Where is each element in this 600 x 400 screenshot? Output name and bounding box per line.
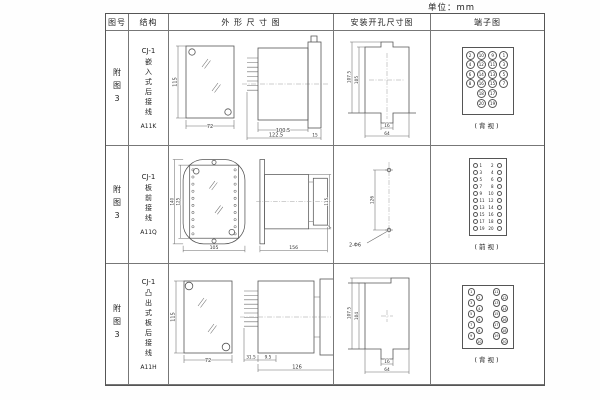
terminal-number: 10 [486, 191, 494, 196]
cell-terminal-row1: 2109141211361413581615718172019 (背视) [431, 31, 544, 146]
terminal-diagram-front-a11q: 1357911131517192468101214161820 [469, 158, 507, 236]
mounting-drawing-a11k: 107.5 105 16 64 [335, 33, 430, 143]
terminal-circle: 11 [488, 60, 497, 69]
terminal-diagram-rear-a11h: 1234567891011121314151617181920 [462, 285, 514, 349]
model-label: A11K [141, 123, 157, 130]
structure-label: 凸出式板后接线 [144, 289, 154, 359]
cell-terminal-row3: 1234567891011121314151617181920 (背视) [431, 264, 544, 385]
header-mounting: 安装开孔尺寸图 [334, 14, 431, 31]
terminal-circle: 20 [501, 338, 509, 346]
model-label: A11Q [140, 229, 156, 236]
terminal-circle [473, 170, 478, 175]
dim-gap: 9.5 [264, 355, 271, 361]
terminal-number: 18 [486, 219, 494, 224]
terminal-circle: 6 [476, 316, 484, 324]
terminal-circle: 19 [493, 332, 501, 340]
terminal-circle [497, 219, 502, 224]
dim-opening-width: 64 [384, 131, 390, 137]
model-label: A11H [140, 364, 156, 371]
terminal-circle [473, 226, 478, 231]
terminal-circle: 14 [501, 305, 509, 313]
terminal-circle: 19 [488, 99, 497, 108]
terminal-circle [473, 198, 478, 203]
structure-label: 板前接线 [144, 184, 154, 224]
dim-front-width: 105 [209, 245, 218, 251]
terminal-number: 14 [486, 205, 494, 210]
terminal-view-label: (背视) [474, 354, 500, 364]
structure-label: 嵌入式后接线 [144, 58, 154, 118]
fig-number: 附图3 [112, 185, 123, 225]
cell-outline-row2: 140 125 105 156 115 [169, 146, 334, 264]
cell-fig-row2: 附图3 [106, 146, 129, 264]
terminal-circle [497, 184, 502, 189]
terminal-circle [473, 177, 478, 182]
dim-front-width: 72 [206, 124, 212, 130]
terminal-circle: 20 [477, 99, 486, 108]
terminal-circle [497, 177, 502, 182]
cell-mounting-row2: 126 2-Φ6 [334, 146, 431, 264]
terminal-circle: 12 [477, 60, 486, 69]
terminal-circle: 3 [468, 299, 476, 307]
cell-structure-row3: CJ-1 凸出式板后接线 A11H [129, 264, 169, 385]
terminal-circle: 2 [466, 51, 475, 60]
terminal-circle: 16 [501, 316, 509, 324]
terminal-circle: 17 [493, 321, 501, 329]
terminal-circle [497, 226, 502, 231]
fig-number: 附图3 [112, 68, 123, 108]
terminal-circle: 10 [476, 338, 484, 346]
dim-inner-height: 105 [353, 76, 359, 84]
terminal-circle: 13 [493, 299, 501, 307]
terminal-number: 6 [486, 177, 494, 182]
terminal-circle [497, 163, 502, 168]
terminal-circle: 5 [468, 310, 476, 318]
dim-slot-width: 16 [384, 123, 390, 129]
terminal-circle: 2 [476, 294, 484, 302]
spec-table: 图号 结构 外 形 尺 寸 图 安装开孔尺寸图 端子图 附图3 CJ-1 嵌入式… [105, 13, 545, 386]
terminal-circle: 6 [466, 70, 475, 79]
dim-side-length: 156 [289, 245, 298, 251]
terminal-number: 16 [486, 212, 494, 217]
terminal-circle [497, 198, 502, 203]
terminal-view-label: (前视) [474, 241, 500, 251]
header-structure: 结构 [129, 14, 169, 31]
dim-pin-length: 31.5 [246, 355, 256, 361]
dim-opening-width: 64 [384, 367, 390, 373]
terminal-circle: 7 [499, 79, 508, 88]
terminal-circle [497, 205, 502, 210]
terminal-number: 12 [486, 198, 494, 203]
cell-outline-row1: 115 72 100.5 122.5 15 [169, 31, 334, 146]
dim-flange: 15 [312, 133, 318, 139]
terminal-circle: 9 [488, 51, 497, 60]
terminal-circle: 1 [468, 288, 476, 296]
header-fig: 图号 [106, 14, 129, 31]
terminal-circle: 4 [466, 60, 475, 69]
terminal-circle: 18 [501, 327, 509, 335]
terminal-circle: 5 [499, 70, 508, 79]
series-label: CJ-1 [142, 47, 156, 55]
terminal-circle: 15 [488, 79, 497, 88]
terminal-circle: 11 [493, 288, 501, 296]
dim-front-height: 140 [170, 197, 175, 205]
dim-front-height: 115 [170, 312, 176, 322]
dim-outer-height: 107.5 [346, 307, 352, 320]
cell-terminal-row2: 1357911131517192468101214161820 (前视) [431, 146, 544, 264]
cell-structure-row2: CJ-1 板前接线 A11Q [129, 146, 169, 264]
terminal-circle: 18 [477, 89, 486, 98]
terminal-circle: 13 [488, 70, 497, 79]
terminal-circle [473, 219, 478, 224]
terminal-view-label: (背视) [474, 120, 500, 130]
cell-mounting-row1: 107.5 105 16 64 [334, 31, 431, 146]
terminal-diagram-rear-a11k: 2109141211361413581615718172019 [462, 47, 514, 115]
mounting-drawing-a11q: 126 2-Φ6 [335, 150, 430, 260]
terminal-number: 2 [486, 163, 494, 168]
terminal-number: 8 [486, 184, 494, 189]
terminal-circle: 7 [468, 321, 476, 329]
terminal-circle [497, 170, 502, 175]
terminal-circle: 9 [468, 332, 476, 340]
terminal-circle: 1 [499, 51, 508, 60]
outline-drawing-a11h: 115 72 31.5 9.5 126 [170, 268, 333, 380]
terminal-circle: 14 [477, 70, 486, 79]
unit-label: 单位：mm [428, 1, 475, 13]
dim-total-length: 126 [292, 365, 302, 371]
cell-outline-row3: 115 72 31.5 9.5 126 [169, 264, 334, 385]
dim-slot-width: 16 [384, 359, 390, 365]
outline-drawing-a11k: 115 72 100.5 122.5 15 [170, 33, 333, 143]
terminal-circle: 12 [501, 294, 509, 302]
terminal-number: 4 [486, 170, 494, 175]
dim-inner-height: 125 [175, 197, 180, 205]
terminal-circle: 3 [499, 60, 508, 69]
hole-size-label: 2-Φ6 [348, 242, 360, 248]
terminal-circle [473, 163, 478, 168]
terminal-circle [473, 212, 478, 217]
dim-hole-spacing: 126 [369, 195, 375, 203]
dim-inner-height: 104 [353, 312, 359, 320]
dim-side-height: 115 [323, 197, 328, 205]
dim-front-height: 115 [172, 77, 178, 87]
cell-fig-row3: 附图3 [106, 264, 129, 385]
dim-outer-height: 107.5 [346, 71, 352, 84]
series-label: CJ-1 [142, 173, 156, 181]
terminal-circle: 8 [476, 327, 484, 335]
terminal-circle: 10 [477, 51, 486, 60]
page: 单位：mm 图号 结构 外 形 尺 寸 图 安装开孔尺寸图 端子图 附图3 CJ… [0, 0, 600, 400]
terminal-circle: 4 [476, 305, 484, 313]
dim-front-width: 72 [204, 358, 210, 364]
terminal-circle [473, 184, 478, 189]
dim-total-length: 122.5 [268, 133, 282, 139]
terminal-circle [473, 191, 478, 196]
mounting-drawing-a11h: 107.5 104 16 64 [335, 269, 430, 379]
terminal-circle [473, 205, 478, 210]
cell-fig-row1: 附图3 [106, 31, 129, 146]
terminal-circle: 8 [466, 79, 475, 88]
terminal-number: 20 [486, 226, 494, 231]
terminal-circle [497, 212, 502, 217]
header-terminal: 端子图 [431, 14, 544, 31]
terminal-circle: 15 [493, 310, 501, 318]
terminal-circle [497, 191, 502, 196]
header-outline: 外 形 尺 寸 图 [169, 14, 334, 31]
terminal-circle: 17 [488, 89, 497, 98]
terminal-circle: 16 [477, 79, 486, 88]
cell-mounting-row3: 107.5 104 16 64 [334, 264, 431, 385]
series-label: CJ-1 [142, 278, 156, 286]
outline-drawing-a11q: 140 125 105 156 115 [170, 151, 333, 258]
cell-structure-row1: CJ-1 嵌入式后接线 A11K [129, 31, 169, 146]
fig-number: 附图3 [112, 304, 123, 344]
